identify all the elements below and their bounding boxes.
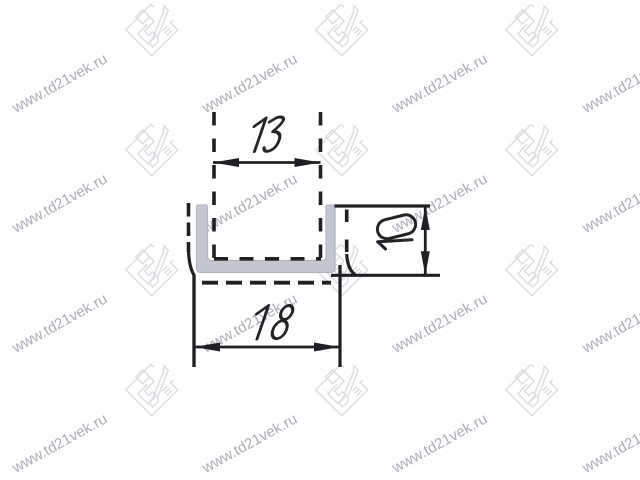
svg-text:www.td21vek.ru: www.td21vek.ru [389, 290, 491, 357]
svg-text:www.td21vek.ru: www.td21vek.ru [9, 290, 111, 357]
svg-text:www.td21vek.ru: www.td21vek.ru [579, 290, 640, 357]
svg-text:www.td21vek.ru: www.td21vek.ru [579, 170, 640, 237]
svg-text:www.td21vek.ru: www.td21vek.ru [579, 410, 640, 477]
svg-text:www.td21vek.ru: www.td21vek.ru [199, 50, 301, 117]
svg-text:www.td21vek.ru: www.td21vek.ru [389, 410, 491, 477]
svg-text:www.td21vek.ru: www.td21vek.ru [9, 50, 111, 117]
svg-text:www.td21vek.ru: www.td21vek.ru [389, 170, 491, 237]
svg-text:www.td21vek.ru: www.td21vek.ru [389, 50, 491, 117]
svg-text:www.td21vek.ru: www.td21vek.ru [199, 410, 301, 477]
svg-text:www.td21vek.ru: www.td21vek.ru [579, 50, 640, 117]
svg-text:www.td21vek.ru: www.td21vek.ru [9, 410, 111, 477]
svg-text:www.td21vek.ru: www.td21vek.ru [9, 170, 111, 237]
